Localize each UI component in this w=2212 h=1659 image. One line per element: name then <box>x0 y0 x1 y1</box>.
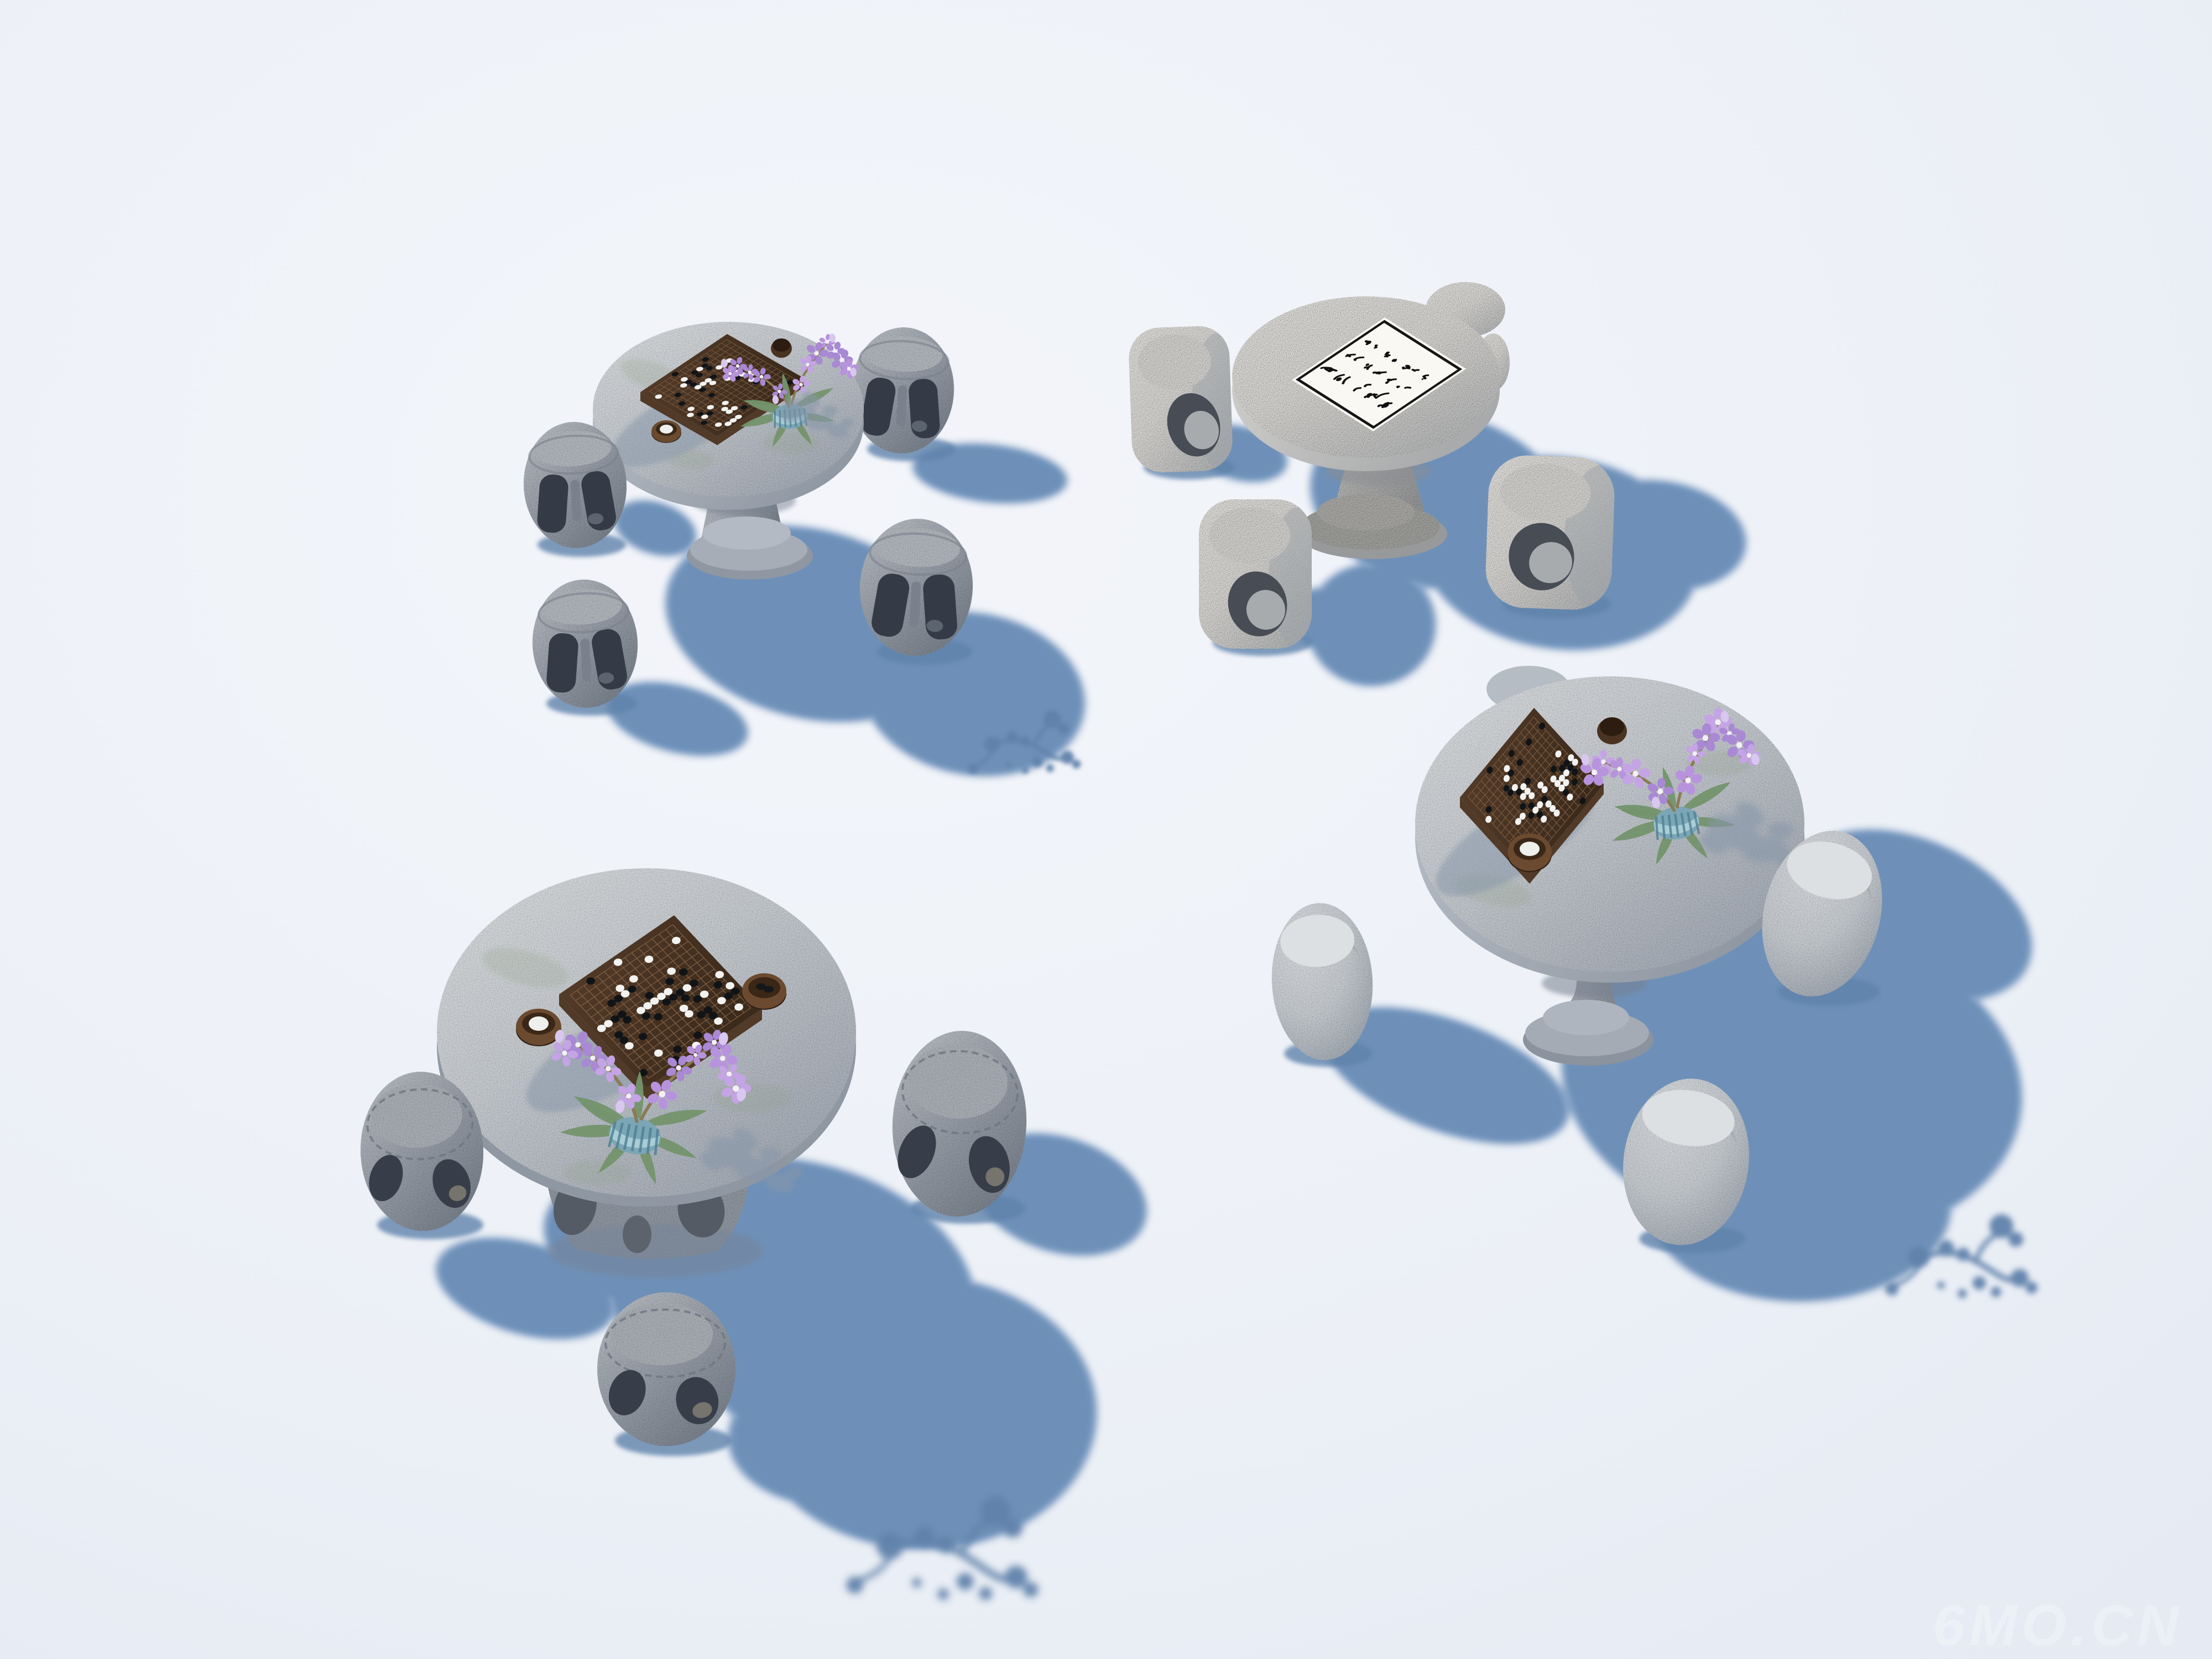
svg-text:6MO.CN: 6MO.CN <box>1933 1594 2183 1658</box>
